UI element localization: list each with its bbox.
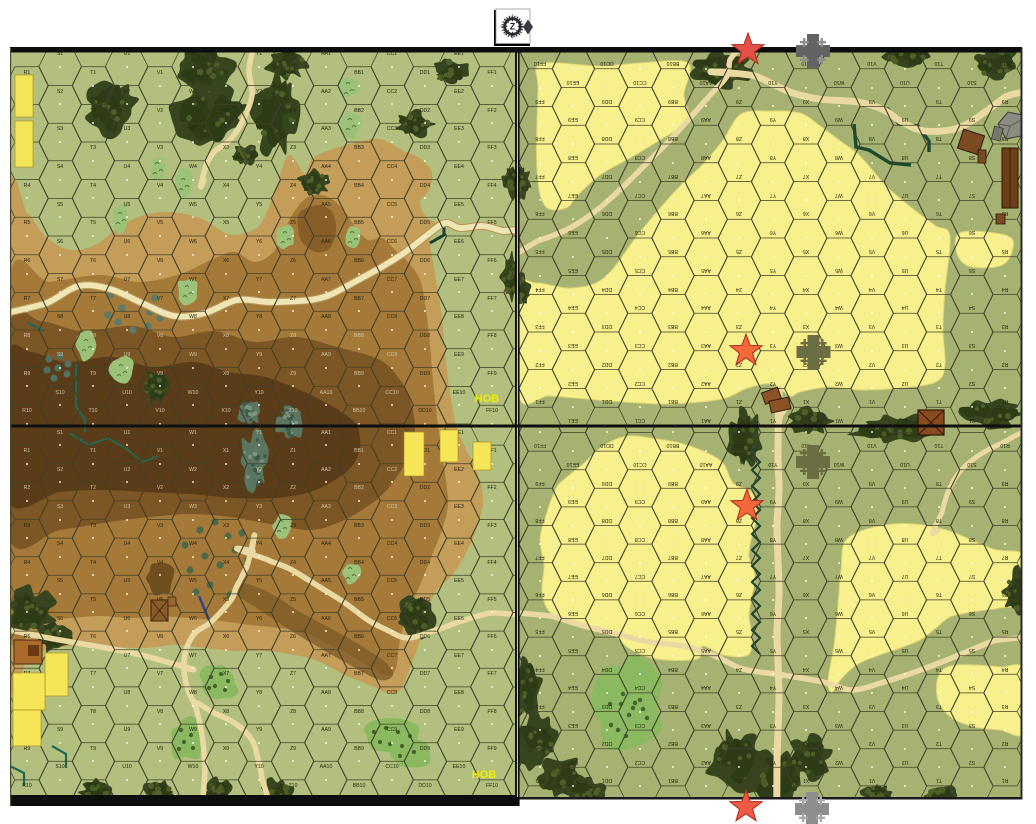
svg-text:T5: T5 (936, 248, 942, 254)
svg-text:U5: U5 (124, 578, 131, 584)
svg-text:FF10: FF10 (486, 408, 498, 414)
svg-text:U6: U6 (124, 239, 131, 245)
svg-text:U9: U9 (124, 352, 131, 358)
svg-text:X3: X3 (803, 323, 809, 329)
svg-text:FF5: FF5 (535, 628, 544, 634)
svg-text:X7: X7 (803, 173, 809, 179)
svg-text:U4: U4 (124, 541, 131, 547)
svg-text:S2: S2 (57, 467, 63, 473)
svg-text:EE10: EE10 (453, 390, 466, 396)
svg-text:W10: W10 (834, 79, 845, 85)
svg-text:W9: W9 (835, 116, 843, 122)
svg-text:T9: T9 (936, 480, 942, 486)
svg-text:Z5: Z5 (290, 220, 296, 226)
svg-text:V6: V6 (157, 258, 163, 264)
svg-text:DD3: DD3 (420, 145, 430, 151)
svg-text:EE8: EE8 (454, 690, 464, 696)
svg-text:V8: V8 (869, 135, 875, 141)
svg-text:Z3: Z3 (736, 323, 742, 329)
svg-text:T5: T5 (90, 220, 96, 226)
svg-text:Y5: Y5 (770, 647, 776, 653)
svg-text:S9: S9 (969, 116, 975, 122)
svg-text:W1: W1 (835, 417, 843, 423)
svg-text:AA7: AA7 (701, 573, 711, 579)
svg-text:T4: T4 (90, 183, 96, 189)
svg-text:U9: U9 (902, 498, 909, 504)
svg-text:V1: V1 (869, 777, 875, 783)
svg-text:EE5: EE5 (454, 578, 464, 584)
svg-text:W6: W6 (835, 229, 843, 235)
svg-text:V2: V2 (869, 361, 875, 367)
svg-text:W10: W10 (188, 764, 199, 770)
svg-text:BB8: BB8 (668, 517, 678, 523)
svg-text:CC7: CC7 (387, 277, 397, 283)
svg-text:W7: W7 (835, 573, 843, 579)
svg-text:V10: V10 (155, 783, 164, 789)
svg-text:V9: V9 (869, 98, 875, 104)
svg-text:W8: W8 (835, 154, 843, 160)
svg-text:AA4: AA4 (701, 304, 711, 310)
svg-text:FF6: FF6 (487, 258, 496, 264)
svg-text:U6: U6 (124, 616, 131, 622)
svg-text:DD3: DD3 (602, 703, 612, 709)
svg-text:CC5: CC5 (387, 578, 397, 584)
svg-text:BB7: BB7 (354, 296, 364, 302)
svg-text:CC2: CC2 (635, 759, 645, 765)
svg-text:DD8: DD8 (420, 709, 430, 715)
svg-text:S2: S2 (969, 759, 975, 765)
svg-text:CC8: CC8 (635, 536, 645, 542)
svg-text:S6: S6 (969, 610, 975, 616)
svg-text:Y1: Y1 (256, 430, 262, 436)
svg-text:BB1: BB1 (668, 398, 678, 404)
svg-text:DD9: DD9 (420, 746, 430, 752)
svg-text:AA5: AA5 (701, 647, 711, 653)
svg-text:Y2: Y2 (770, 759, 776, 765)
svg-text:DD6: DD6 (420, 258, 430, 264)
svg-text:DD9: DD9 (602, 98, 612, 104)
svg-text:W6: W6 (835, 610, 843, 616)
svg-text:T2: T2 (90, 108, 96, 114)
svg-text:S1: S1 (57, 430, 63, 436)
svg-text:Y4: Y4 (256, 164, 262, 170)
svg-text:BB4: BB4 (354, 183, 364, 189)
svg-text:V8: V8 (869, 517, 875, 523)
svg-text:CC6: CC6 (387, 239, 397, 245)
svg-text:X8: X8 (803, 135, 809, 141)
svg-text:X9: X9 (223, 746, 229, 752)
svg-text:AA6: AA6 (321, 616, 331, 622)
svg-text:FF4: FF4 (487, 560, 496, 566)
svg-text:S7: S7 (969, 192, 975, 198)
svg-text:DD3: DD3 (420, 523, 430, 529)
svg-text:X1: X1 (223, 448, 229, 454)
svg-text:BB10: BB10 (353, 783, 366, 789)
svg-text:Y4: Y4 (770, 684, 776, 690)
svg-text:EE4: EE4 (454, 541, 464, 547)
svg-text:S4: S4 (969, 684, 975, 690)
svg-text:Z7: Z7 (290, 671, 296, 677)
svg-text:DD4: DD4 (420, 183, 430, 189)
svg-text:V3: V3 (869, 703, 875, 709)
svg-text:W7: W7 (189, 277, 197, 283)
svg-text:W10: W10 (188, 390, 199, 396)
svg-text:BB5: BB5 (668, 628, 678, 634)
svg-text:AA6: AA6 (701, 610, 711, 616)
svg-text:FF2: FF2 (487, 108, 496, 114)
svg-text:X7: X7 (223, 296, 229, 302)
svg-text:Z9: Z9 (736, 98, 742, 104)
svg-text:Y9: Y9 (770, 498, 776, 504)
svg-text:R5: R5 (1002, 248, 1009, 254)
svg-text:FF3: FF3 (487, 145, 496, 151)
svg-text:R1: R1 (1002, 777, 1009, 783)
svg-text:FF8: FF8 (535, 517, 544, 523)
svg-text:S6: S6 (57, 239, 63, 245)
svg-text:BB8: BB8 (354, 709, 364, 715)
svg-text:V6: V6 (157, 634, 163, 640)
svg-text:T7: T7 (936, 173, 942, 179)
svg-text:X5: X5 (803, 248, 809, 254)
svg-text:V5: V5 (157, 220, 163, 226)
svg-text:CC8: CC8 (387, 690, 397, 696)
svg-text:Z10: Z10 (289, 408, 298, 414)
svg-text:V1: V1 (157, 448, 163, 454)
svg-text:T7: T7 (90, 671, 96, 677)
svg-text:S5: S5 (57, 202, 63, 208)
svg-text:AA4: AA4 (321, 541, 331, 547)
svg-text:V7: V7 (157, 296, 163, 302)
svg-text:DD1: DD1 (602, 398, 612, 404)
svg-text:Z6: Z6 (290, 258, 296, 264)
svg-text:V9: V9 (869, 480, 875, 486)
svg-text:Y10: Y10 (768, 79, 777, 85)
svg-text:Z1: Z1 (290, 448, 296, 454)
svg-text:V8: V8 (157, 333, 163, 339)
svg-text:BB3: BB3 (668, 703, 678, 709)
svg-text:S7: S7 (57, 277, 63, 283)
svg-text:BB5: BB5 (354, 220, 364, 226)
svg-text:X9: X9 (223, 371, 229, 377)
svg-text:U9: U9 (902, 116, 909, 122)
svg-text:EE3: EE3 (568, 342, 578, 348)
svg-text:EE3: EE3 (568, 722, 578, 728)
svg-text:R7: R7 (24, 296, 31, 302)
svg-text:EE7: EE7 (568, 192, 578, 198)
svg-text:FF4: FF4 (487, 183, 496, 189)
svg-text:U5: U5 (902, 267, 909, 273)
svg-text:V5: V5 (869, 628, 875, 634)
svg-text:V9: V9 (157, 371, 163, 377)
svg-text:S3: S3 (57, 126, 63, 132)
svg-text:Y5: Y5 (256, 202, 262, 208)
svg-text:R8: R8 (1002, 517, 1009, 523)
svg-text:AA3: AA3 (701, 722, 711, 728)
svg-text:FF3: FF3 (487, 523, 496, 529)
svg-text:BB10: BB10 (353, 408, 366, 414)
svg-text:T10: T10 (934, 60, 943, 66)
svg-text:AA4: AA4 (701, 684, 711, 690)
svg-text:Y5: Y5 (256, 578, 262, 584)
svg-text:CC7: CC7 (635, 192, 645, 198)
svg-text:FF7: FF7 (487, 671, 496, 677)
svg-text:CC10: CC10 (385, 764, 398, 770)
svg-text:AA9: AA9 (321, 727, 331, 733)
svg-text:EE9: EE9 (454, 727, 464, 733)
svg-text:DD7: DD7 (602, 173, 612, 179)
svg-text:CC4: CC4 (635, 684, 645, 690)
svg-text:Y10: Y10 (254, 764, 263, 770)
svg-text:U8: U8 (124, 314, 131, 320)
svg-text:T1: T1 (90, 448, 96, 454)
svg-text:EE1: EE1 (568, 417, 578, 423)
svg-text:Z6: Z6 (736, 210, 742, 216)
svg-text:Y8: Y8 (256, 314, 262, 320)
svg-text:Y2: Y2 (256, 89, 262, 95)
svg-text:R6: R6 (24, 258, 31, 264)
svg-text:T4: T4 (936, 286, 942, 292)
svg-text:Y6: Y6 (256, 616, 262, 622)
svg-text:V5: V5 (869, 248, 875, 254)
svg-text:Y8: Y8 (256, 690, 262, 696)
svg-text:V1: V1 (869, 398, 875, 404)
svg-text:T6: T6 (90, 634, 96, 640)
svg-text:BB7: BB7 (668, 554, 678, 560)
svg-text:X4: X4 (223, 183, 229, 189)
svg-text:AA5: AA5 (701, 267, 711, 273)
svg-text:EE9: EE9 (568, 498, 578, 504)
svg-text:HOB: HOB (475, 393, 500, 405)
svg-text:S4: S4 (969, 304, 975, 310)
svg-text:V4: V4 (869, 286, 875, 292)
svg-text:U2: U2 (902, 380, 909, 386)
svg-text:Z1: Z1 (290, 70, 296, 76)
svg-text:U1: U1 (902, 417, 909, 423)
svg-text:X6: X6 (223, 634, 229, 640)
svg-text:Y9: Y9 (256, 727, 262, 733)
svg-text:V2: V2 (157, 108, 163, 114)
svg-text:T9: T9 (90, 746, 96, 752)
svg-text:U8: U8 (124, 690, 131, 696)
svg-text:FF4: FF4 (535, 666, 544, 672)
svg-text:S5: S5 (57, 578, 63, 584)
svg-text:CC3: CC3 (635, 342, 645, 348)
svg-text:R3: R3 (1002, 323, 1009, 329)
svg-text:R7: R7 (1002, 554, 1009, 560)
svg-text:DD2: DD2 (602, 740, 612, 746)
svg-text:FF5: FF5 (487, 597, 496, 603)
svg-text:CC5: CC5 (387, 202, 397, 208)
svg-text:V4: V4 (157, 560, 163, 566)
svg-text:R9: R9 (1002, 98, 1009, 104)
svg-text:Y2: Y2 (256, 467, 262, 473)
svg-text:AA1: AA1 (321, 430, 331, 436)
svg-text:EE3: EE3 (454, 126, 464, 132)
svg-text:T1: T1 (90, 70, 96, 76)
svg-text:Z1: Z1 (736, 398, 742, 404)
svg-text:U10: U10 (122, 764, 132, 770)
svg-text:BB3: BB3 (668, 323, 678, 329)
svg-text:V4: V4 (869, 666, 875, 672)
svg-text:FF7: FF7 (487, 296, 496, 302)
svg-text:EE6: EE6 (454, 239, 464, 245)
svg-text:T4: T4 (90, 560, 96, 566)
svg-text:AA5: AA5 (321, 578, 331, 584)
svg-text:DD1: DD1 (420, 70, 430, 76)
svg-text:Y4: Y4 (256, 541, 262, 547)
svg-text:R10: R10 (22, 783, 32, 789)
svg-text:FF3: FF3 (535, 703, 544, 709)
svg-text:Z9: Z9 (290, 371, 296, 377)
svg-text:AA2: AA2 (321, 89, 331, 95)
svg-text:U7: U7 (902, 192, 909, 198)
svg-text:BB2: BB2 (354, 108, 364, 114)
svg-text:T1: T1 (936, 398, 942, 404)
svg-text:X9: X9 (803, 480, 809, 486)
svg-text:T4: T4 (936, 666, 942, 672)
svg-text:BB2: BB2 (668, 361, 678, 367)
svg-text:Y8: Y8 (770, 536, 776, 542)
svg-text:X5: X5 (223, 220, 229, 226)
svg-text:R10: R10 (1000, 442, 1010, 448)
svg-text:DD7: DD7 (602, 554, 612, 560)
svg-text:R10: R10 (1000, 60, 1010, 66)
svg-text:U2: U2 (124, 89, 131, 95)
svg-text:Z7: Z7 (736, 173, 742, 179)
svg-text:U4: U4 (902, 304, 909, 310)
svg-text:Z5: Z5 (290, 597, 296, 603)
svg-text:Z6: Z6 (290, 634, 296, 640)
svg-text:BB3: BB3 (354, 523, 364, 529)
svg-text:T10: T10 (934, 442, 943, 448)
svg-text:Y7: Y7 (770, 192, 776, 198)
svg-text:Z10: Z10 (289, 783, 298, 789)
svg-text:DD10: DD10 (418, 783, 431, 789)
svg-text:CC4: CC4 (635, 304, 645, 310)
svg-text:FF10: FF10 (486, 783, 498, 789)
svg-text:DD6: DD6 (602, 591, 612, 597)
svg-text:W6: W6 (189, 616, 197, 622)
svg-text:AA10: AA10 (320, 764, 333, 770)
svg-text:W4: W4 (835, 304, 843, 310)
svg-text:V10: V10 (155, 408, 164, 414)
svg-text:W3: W3 (835, 722, 843, 728)
svg-text:FF8: FF8 (487, 709, 496, 715)
svg-text:BB1: BB1 (668, 777, 678, 783)
svg-text:X10: X10 (221, 408, 230, 414)
svg-text:BB4: BB4 (354, 560, 364, 566)
svg-text:W9: W9 (189, 352, 197, 358)
svg-text:T5: T5 (936, 628, 942, 634)
svg-text:W4: W4 (189, 164, 197, 170)
svg-text:S9: S9 (57, 727, 63, 733)
svg-text:Y3: Y3 (770, 722, 776, 728)
svg-text:EE2: EE2 (454, 89, 464, 95)
svg-text:V3: V3 (869, 323, 875, 329)
svg-text:R6: R6 (1002, 591, 1009, 597)
svg-text:EE8: EE8 (568, 154, 578, 160)
svg-text:S10: S10 (967, 461, 976, 467)
svg-text:Z2: Z2 (736, 740, 742, 746)
svg-text:S5: S5 (969, 647, 975, 653)
svg-text:FF5: FF5 (487, 220, 496, 226)
svg-text:S5: S5 (969, 267, 975, 273)
svg-text:FF9: FF9 (535, 480, 544, 486)
svg-text:FF8: FF8 (487, 333, 496, 339)
svg-text:T10: T10 (89, 783, 98, 789)
svg-text:X7: X7 (803, 554, 809, 560)
svg-text:EE8: EE8 (568, 536, 578, 542)
svg-text:T3: T3 (936, 323, 942, 329)
svg-text:DD6: DD6 (602, 210, 612, 216)
svg-text:W2: W2 (835, 380, 843, 386)
svg-text:DD4: DD4 (420, 560, 430, 566)
svg-text:Z4: Z4 (290, 183, 296, 189)
svg-text:W5: W5 (189, 578, 197, 584)
svg-text:W3: W3 (189, 504, 197, 510)
svg-text:BB9: BB9 (668, 98, 678, 104)
svg-text:Z1: Z1 (736, 777, 742, 783)
svg-text:Z4: Z4 (290, 560, 296, 566)
svg-text:Z6: Z6 (736, 591, 742, 597)
svg-text:Y1: Y1 (770, 417, 776, 423)
svg-text:T8: T8 (90, 333, 96, 339)
svg-text:Y6: Y6 (770, 610, 776, 616)
svg-text:CC8: CC8 (387, 314, 397, 320)
svg-text:FF10: FF10 (534, 442, 546, 448)
svg-text:FF1: FF1 (487, 70, 496, 76)
svg-text:AA1: AA1 (701, 417, 711, 423)
svg-text:AA6: AA6 (701, 229, 711, 235)
svg-text:R9: R9 (24, 371, 31, 377)
svg-text:Z10: Z10 (734, 442, 743, 448)
svg-text:FF4: FF4 (535, 286, 544, 292)
svg-text:V7: V7 (869, 554, 875, 560)
svg-text:U3: U3 (902, 342, 909, 348)
svg-text:W10: W10 (834, 461, 845, 467)
svg-text:CC9: CC9 (635, 116, 645, 122)
svg-text:FF6: FF6 (535, 591, 544, 597)
svg-text:Y8: Y8 (770, 154, 776, 160)
svg-text:DD9: DD9 (420, 371, 430, 377)
svg-text:R4: R4 (24, 183, 31, 189)
svg-text:S6: S6 (969, 229, 975, 235)
svg-text:R1: R1 (24, 448, 31, 454)
svg-text:Z7: Z7 (736, 554, 742, 560)
svg-text:CC1: CC1 (387, 430, 397, 436)
svg-text:V2: V2 (869, 740, 875, 746)
svg-text:S2: S2 (57, 89, 63, 95)
svg-text:EE8: EE8 (454, 314, 464, 320)
svg-text:AA9: AA9 (701, 116, 711, 122)
svg-text:AA4: AA4 (321, 164, 331, 170)
svg-text:DD10: DD10 (600, 442, 613, 448)
svg-text:DD8: DD8 (602, 517, 612, 523)
svg-text:S8: S8 (57, 314, 63, 320)
svg-text:AA3: AA3 (321, 504, 331, 510)
svg-text:AA8: AA8 (701, 154, 711, 160)
svg-text:U10: U10 (900, 79, 910, 85)
svg-text:DD5: DD5 (602, 628, 612, 634)
svg-text:R10: R10 (22, 408, 32, 414)
svg-text:Y6: Y6 (256, 239, 262, 245)
svg-text:W1: W1 (189, 430, 197, 436)
svg-text:BB1: BB1 (354, 448, 364, 454)
svg-text:Y7: Y7 (256, 277, 262, 283)
svg-text:V10: V10 (867, 442, 876, 448)
svg-text:CC9: CC9 (387, 727, 397, 733)
svg-text:EE4: EE4 (568, 684, 578, 690)
